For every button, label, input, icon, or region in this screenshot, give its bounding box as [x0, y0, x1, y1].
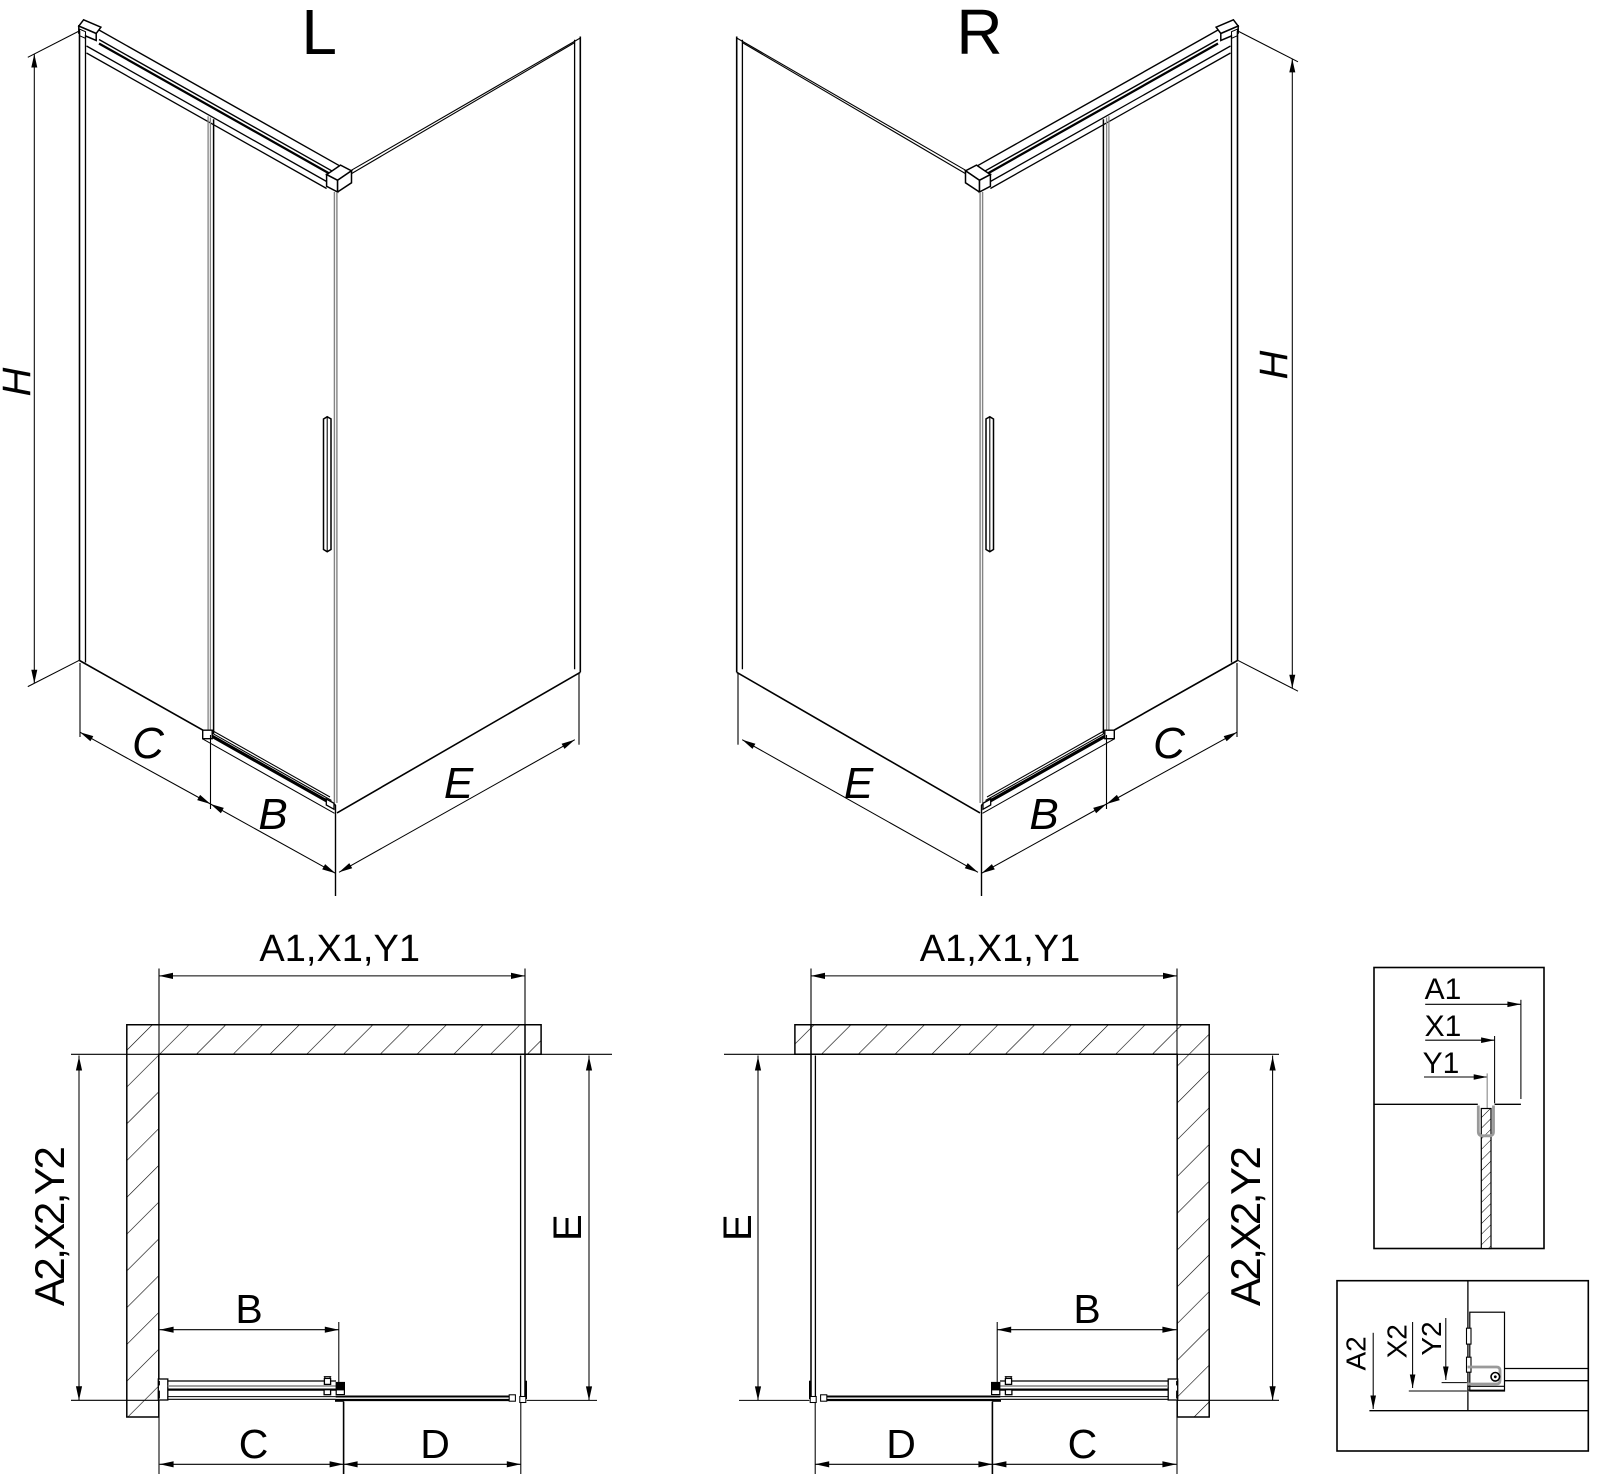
svg-text:C: C: [239, 1421, 269, 1467]
svg-text:R: R: [956, 0, 1002, 68]
svg-text:B: B: [258, 790, 287, 839]
svg-text:H: H: [0, 367, 39, 396]
svg-text:A1,X1,Y1: A1,X1,Y1: [259, 928, 420, 970]
svg-text:X1: X1: [1425, 1010, 1462, 1043]
svg-text:C: C: [1068, 1421, 1098, 1467]
svg-text:A2: A2: [1341, 1336, 1372, 1370]
svg-text:C: C: [1153, 719, 1186, 768]
svg-text:E: E: [546, 1214, 590, 1241]
svg-text:E: E: [716, 1214, 760, 1241]
svg-text:E: E: [444, 759, 474, 808]
svg-text:A2,X2,Y2: A2,X2,Y2: [26, 1148, 73, 1307]
svg-text:A1,X1,Y1: A1,X1,Y1: [920, 928, 1081, 970]
svg-text:D: D: [886, 1421, 916, 1467]
svg-text:B: B: [1073, 1286, 1100, 1332]
svg-text:L: L: [301, 0, 337, 68]
svg-text:Y1: Y1: [1423, 1047, 1460, 1080]
svg-text:B: B: [1029, 790, 1058, 839]
svg-text:A2,X2,Y2: A2,X2,Y2: [1222, 1148, 1269, 1307]
svg-text:X2: X2: [1382, 1324, 1413, 1358]
svg-text:C: C: [132, 719, 165, 768]
svg-text:D: D: [420, 1421, 450, 1467]
svg-text:E: E: [844, 759, 874, 808]
svg-text:B: B: [235, 1286, 262, 1332]
svg-text:Y2: Y2: [1416, 1321, 1447, 1355]
svg-text:A1: A1: [1425, 973, 1462, 1006]
svg-text:H: H: [1252, 350, 1296, 379]
